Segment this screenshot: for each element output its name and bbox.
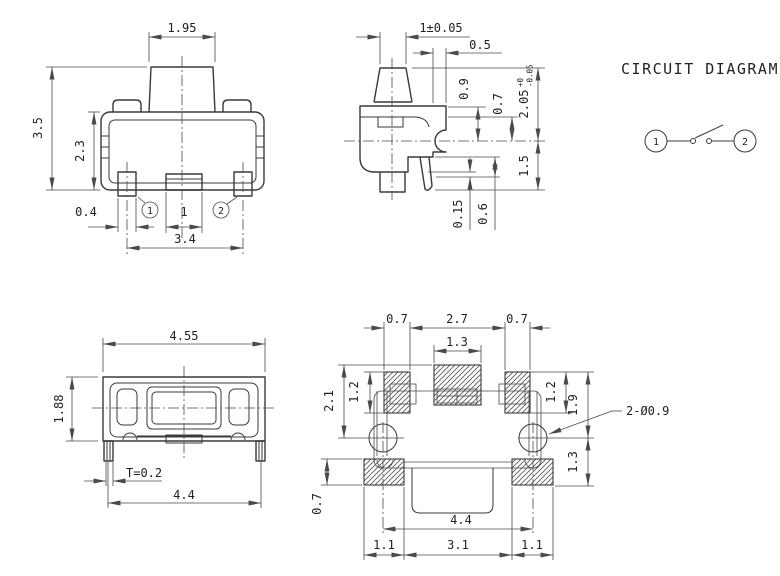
front-view: 1.95 3.5 2.3 0.4 1 3.4 1 2 (31, 21, 264, 256)
front-view-outline (101, 67, 264, 196)
circuit-diagram-title: CIRCUIT DIAGRAM (621, 60, 779, 78)
front-view-centerlines (127, 56, 243, 256)
dim-overall-width: 4.55 (170, 329, 199, 343)
land-pattern-pads (364, 365, 553, 485)
dim-knob-width-tol: 1±0.05 (419, 21, 462, 35)
dim-side-pad-w-left: 0.7 (386, 312, 408, 326)
top-view-centerlines (92, 366, 276, 458)
drawing-canvas: 1.95 3.5 2.3 0.4 1 3.4 1 2 (0, 0, 780, 576)
dim-hole-to-pad-top-right: 1.9 (566, 394, 580, 416)
dim-height-tol-minus: -0.05 (526, 64, 535, 87)
engineering-drawing-page: 1.95 3.5 2.3 0.4 1 3.4 1 2 (0, 0, 780, 576)
dim-hole-to-pad-bottom: 1.3 (566, 451, 580, 473)
dim-lead-tip: 0.6 (476, 203, 490, 225)
dim-pad-inner-span: 2.7 (446, 312, 468, 326)
dim-knob-width: 1.95 (168, 21, 197, 35)
dim-contact-height: 0.7 (491, 93, 505, 115)
dim-top-offset: 0.5 (469, 38, 491, 52)
dim-side-pad-w-right: 0.7 (506, 312, 528, 326)
dim-bottom-right-w: 1.1 (521, 538, 543, 552)
dim-center-tab-width: 1 (180, 205, 187, 219)
side-view-dimensions: 1±0.05 0.5 0.9 0.7 2.05 +0 -0.05 1.5 (356, 21, 545, 230)
dim-lead-thickness: 0.15 (451, 200, 465, 229)
dim-bottom-left-w: 1.1 (373, 538, 395, 552)
land-pattern-dimensions: 0.7 2.7 0.7 1.3 1.2 2.1 1.2 1.9 1.3 2-Ø0… (310, 312, 669, 560)
dim-pad-top-to-hole: 2.1 (322, 390, 336, 412)
dim-total-height: 3.5 (31, 117, 45, 139)
dim-height-tol-plus: +0 (516, 77, 525, 87)
top-view: 4.55 1.88 T=0.2 4.4 (52, 329, 276, 508)
dim-hole-span: 4.4 (450, 513, 472, 527)
dim-height-above-board: 2.05 (517, 90, 531, 119)
dim-overall-depth: 1.88 (52, 395, 66, 424)
dim-body-height: 2.3 (73, 140, 87, 162)
dim-lead-width: 0.4 (75, 205, 97, 219)
dim-terminal-span: 4.4 (173, 488, 195, 502)
circuit-diagram: CIRCUIT DIAGRAM 1 2 (621, 60, 779, 152)
pin1-label: 1 (147, 206, 153, 217)
dim-lead-pitch: 3.4 (174, 232, 196, 246)
pin2-label: 2 (218, 206, 224, 217)
switch-symbol: 1 2 (645, 125, 756, 152)
dim-upper-body: 0.9 (457, 78, 471, 100)
front-view-dimensions: 1.95 3.5 2.3 0.4 1 3.4 1 2 (31, 21, 243, 248)
top-view-dimensions: 4.55 1.88 T=0.2 4.4 (52, 329, 265, 508)
dim-holes-note: 2-Ø0.9 (626, 404, 669, 418)
circuit-pin2: 2 (742, 137, 748, 148)
dim-side-pad-h-right: 1.2 (544, 381, 558, 403)
land-pattern: 0.7 2.7 0.7 1.3 1.2 2.1 1.2 1.9 1.3 2-Ø0… (310, 312, 669, 560)
dim-bottom-pad-h: 0.7 (310, 493, 324, 515)
side-view: 1±0.05 0.5 0.9 0.7 2.05 +0 -0.05 1.5 (344, 21, 548, 230)
dim-bottom-center-w: 3.1 (447, 538, 469, 552)
dim-side-pad-h-left: 1.2 (347, 381, 361, 403)
dim-below-board: 1.5 (517, 155, 531, 177)
dim-center-pad-w: 1.3 (446, 335, 468, 349)
dim-terminal-thickness: T=0.2 (126, 466, 162, 480)
circuit-pin1: 1 (653, 137, 659, 148)
